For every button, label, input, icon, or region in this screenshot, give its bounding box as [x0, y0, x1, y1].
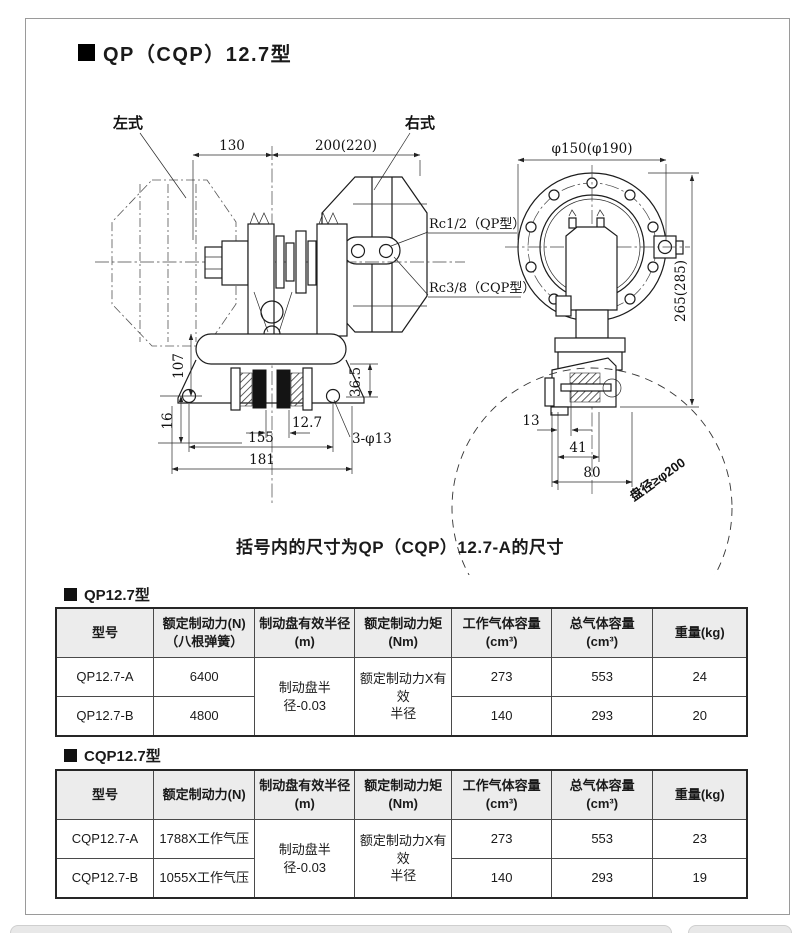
spec-table-cqp: 型号 额定制动力(N) 制动盘有效半径 (m) 额定制动力矩 (Nm) 工作气体… [55, 769, 748, 899]
dim-155: 155 [248, 430, 274, 446]
work-volume-cell: 140 [452, 697, 552, 737]
col-total-volume: 总气体容量 (cm³) [551, 608, 653, 658]
total-volume-cell: 293 [551, 697, 653, 737]
spec-table-qp: 型号 额定制动力(N) （八根弹簧） 制动盘有效半径 (m) 额定制动力矩 (N… [55, 607, 748, 737]
force-cell: 1055X工作气压 [153, 859, 255, 899]
col-total-volume: 总气体容量 (cm³) [551, 770, 653, 820]
radius-cell: 制动盘半径-0.03 [255, 658, 355, 737]
table2-heading: CQP12.7型 [64, 745, 161, 766]
work-volume-cell: 140 [452, 859, 552, 899]
model-cell: CQP12.7-B [56, 859, 153, 899]
square-bullet-icon [64, 588, 77, 601]
table1-heading: QP12.7型 [64, 584, 150, 605]
left-side-view: 左式 右式 Rc1/2（QP型） Rc3/8（CQP型） [95, 114, 535, 505]
col-model: 型号 [56, 608, 153, 658]
table-header-row: 型号 额定制动力(N) 制动盘有效半径 (m) 额定制动力矩 (Nm) 工作气体… [56, 770, 747, 820]
technical-drawing: 左式 右式 Rc1/2（QP型） Rc3/8（CQP型） [0, 0, 800, 575]
weight-cell: 23 [653, 820, 747, 859]
weight-cell: 20 [653, 697, 747, 737]
col-torque: 额定制动力矩 (Nm) [354, 770, 451, 820]
total-volume-cell: 553 [551, 820, 653, 859]
dim-200-220: 200(220) [315, 138, 377, 154]
dim-16: 16 [160, 412, 176, 429]
bottom-card-edge [688, 925, 792, 933]
dim-265-285: 265(285) [673, 260, 689, 322]
dim-flange: φ150(φ190) [552, 141, 633, 157]
datasheet-page: QP（CQP）12.7型 左式 [0, 0, 800, 933]
bottom-card-edge [10, 925, 672, 933]
dim-107: 107 [171, 353, 187, 379]
right-type-label: 右式 [405, 114, 435, 132]
force-cell: 1788X工作气压 [153, 820, 255, 859]
dim-181: 181 [249, 452, 275, 468]
col-model: 型号 [56, 770, 153, 820]
model-cell: QP12.7-B [56, 697, 153, 737]
torque-cell: 额定制动力X有效 半径 [354, 820, 451, 899]
table-row: QP12.7-A 6400 制动盘半径-0.03 额定制动力X有效 半径 273… [56, 658, 747, 697]
weight-cell: 19 [653, 859, 747, 899]
holes-callout: 3-φ13 [352, 431, 392, 447]
weight-cell: 24 [653, 658, 747, 697]
total-volume-cell: 293 [551, 859, 653, 899]
right-front-view: 盘径≥φ200 φ150(φ190) 265(285) 13 41 80 [452, 141, 732, 575]
port-label-qp: Rc1/2（QP型） [429, 217, 525, 232]
work-volume-cell: 273 [452, 820, 552, 859]
dim-80: 80 [583, 465, 600, 481]
dim-36-5: 36.5 [348, 367, 364, 397]
dim-130: 130 [219, 138, 245, 154]
table2-heading-label: CQP12.7型 [84, 745, 161, 766]
col-weight: 重量(kg) [653, 770, 747, 820]
disc-diameter-note: 盘径≥φ200 [627, 455, 688, 504]
dim-13: 13 [522, 413, 539, 429]
torque-cell: 额定制动力X有效 半径 [354, 658, 451, 737]
port-label-cqp: Rc3/8（CQP型） [429, 281, 535, 296]
col-force: 额定制动力(N) （八根弹簧） [153, 608, 255, 658]
table-row: CQP12.7-A 1788X工作气压 制动盘半径-0.03 额定制动力X有效 … [56, 820, 747, 859]
work-volume-cell: 273 [452, 658, 552, 697]
col-torque: 额定制动力矩 (Nm) [354, 608, 451, 658]
left-type-label: 左式 [112, 114, 143, 132]
force-cell: 6400 [153, 658, 255, 697]
model-cell: CQP12.7-A [56, 820, 153, 859]
col-radius: 制动盘有效半径 (m) [255, 608, 355, 658]
dim-12-7: 12.7 [292, 415, 322, 431]
col-force: 额定制动力(N) [153, 770, 255, 820]
force-cell: 4800 [153, 697, 255, 737]
col-work-volume: 工作气体容量 (cm³) [452, 770, 552, 820]
radius-cell: 制动盘半径-0.03 [255, 820, 355, 899]
total-volume-cell: 553 [551, 658, 653, 697]
col-work-volume: 工作气体容量 (cm³) [452, 608, 552, 658]
dim-41: 41 [569, 440, 586, 456]
parenthesis-note: 括号内的尺寸为QP（CQP）12.7-A的尺寸 [0, 533, 800, 558]
table-header-row: 型号 额定制动力(N) （八根弹簧） 制动盘有效半径 (m) 额定制动力矩 (N… [56, 608, 747, 658]
table1-heading-label: QP12.7型 [84, 584, 150, 605]
square-bullet-icon [64, 749, 77, 762]
model-cell: QP12.7-A [56, 658, 153, 697]
col-radius: 制动盘有效半径 (m) [255, 770, 355, 820]
col-weight: 重量(kg) [653, 608, 747, 658]
